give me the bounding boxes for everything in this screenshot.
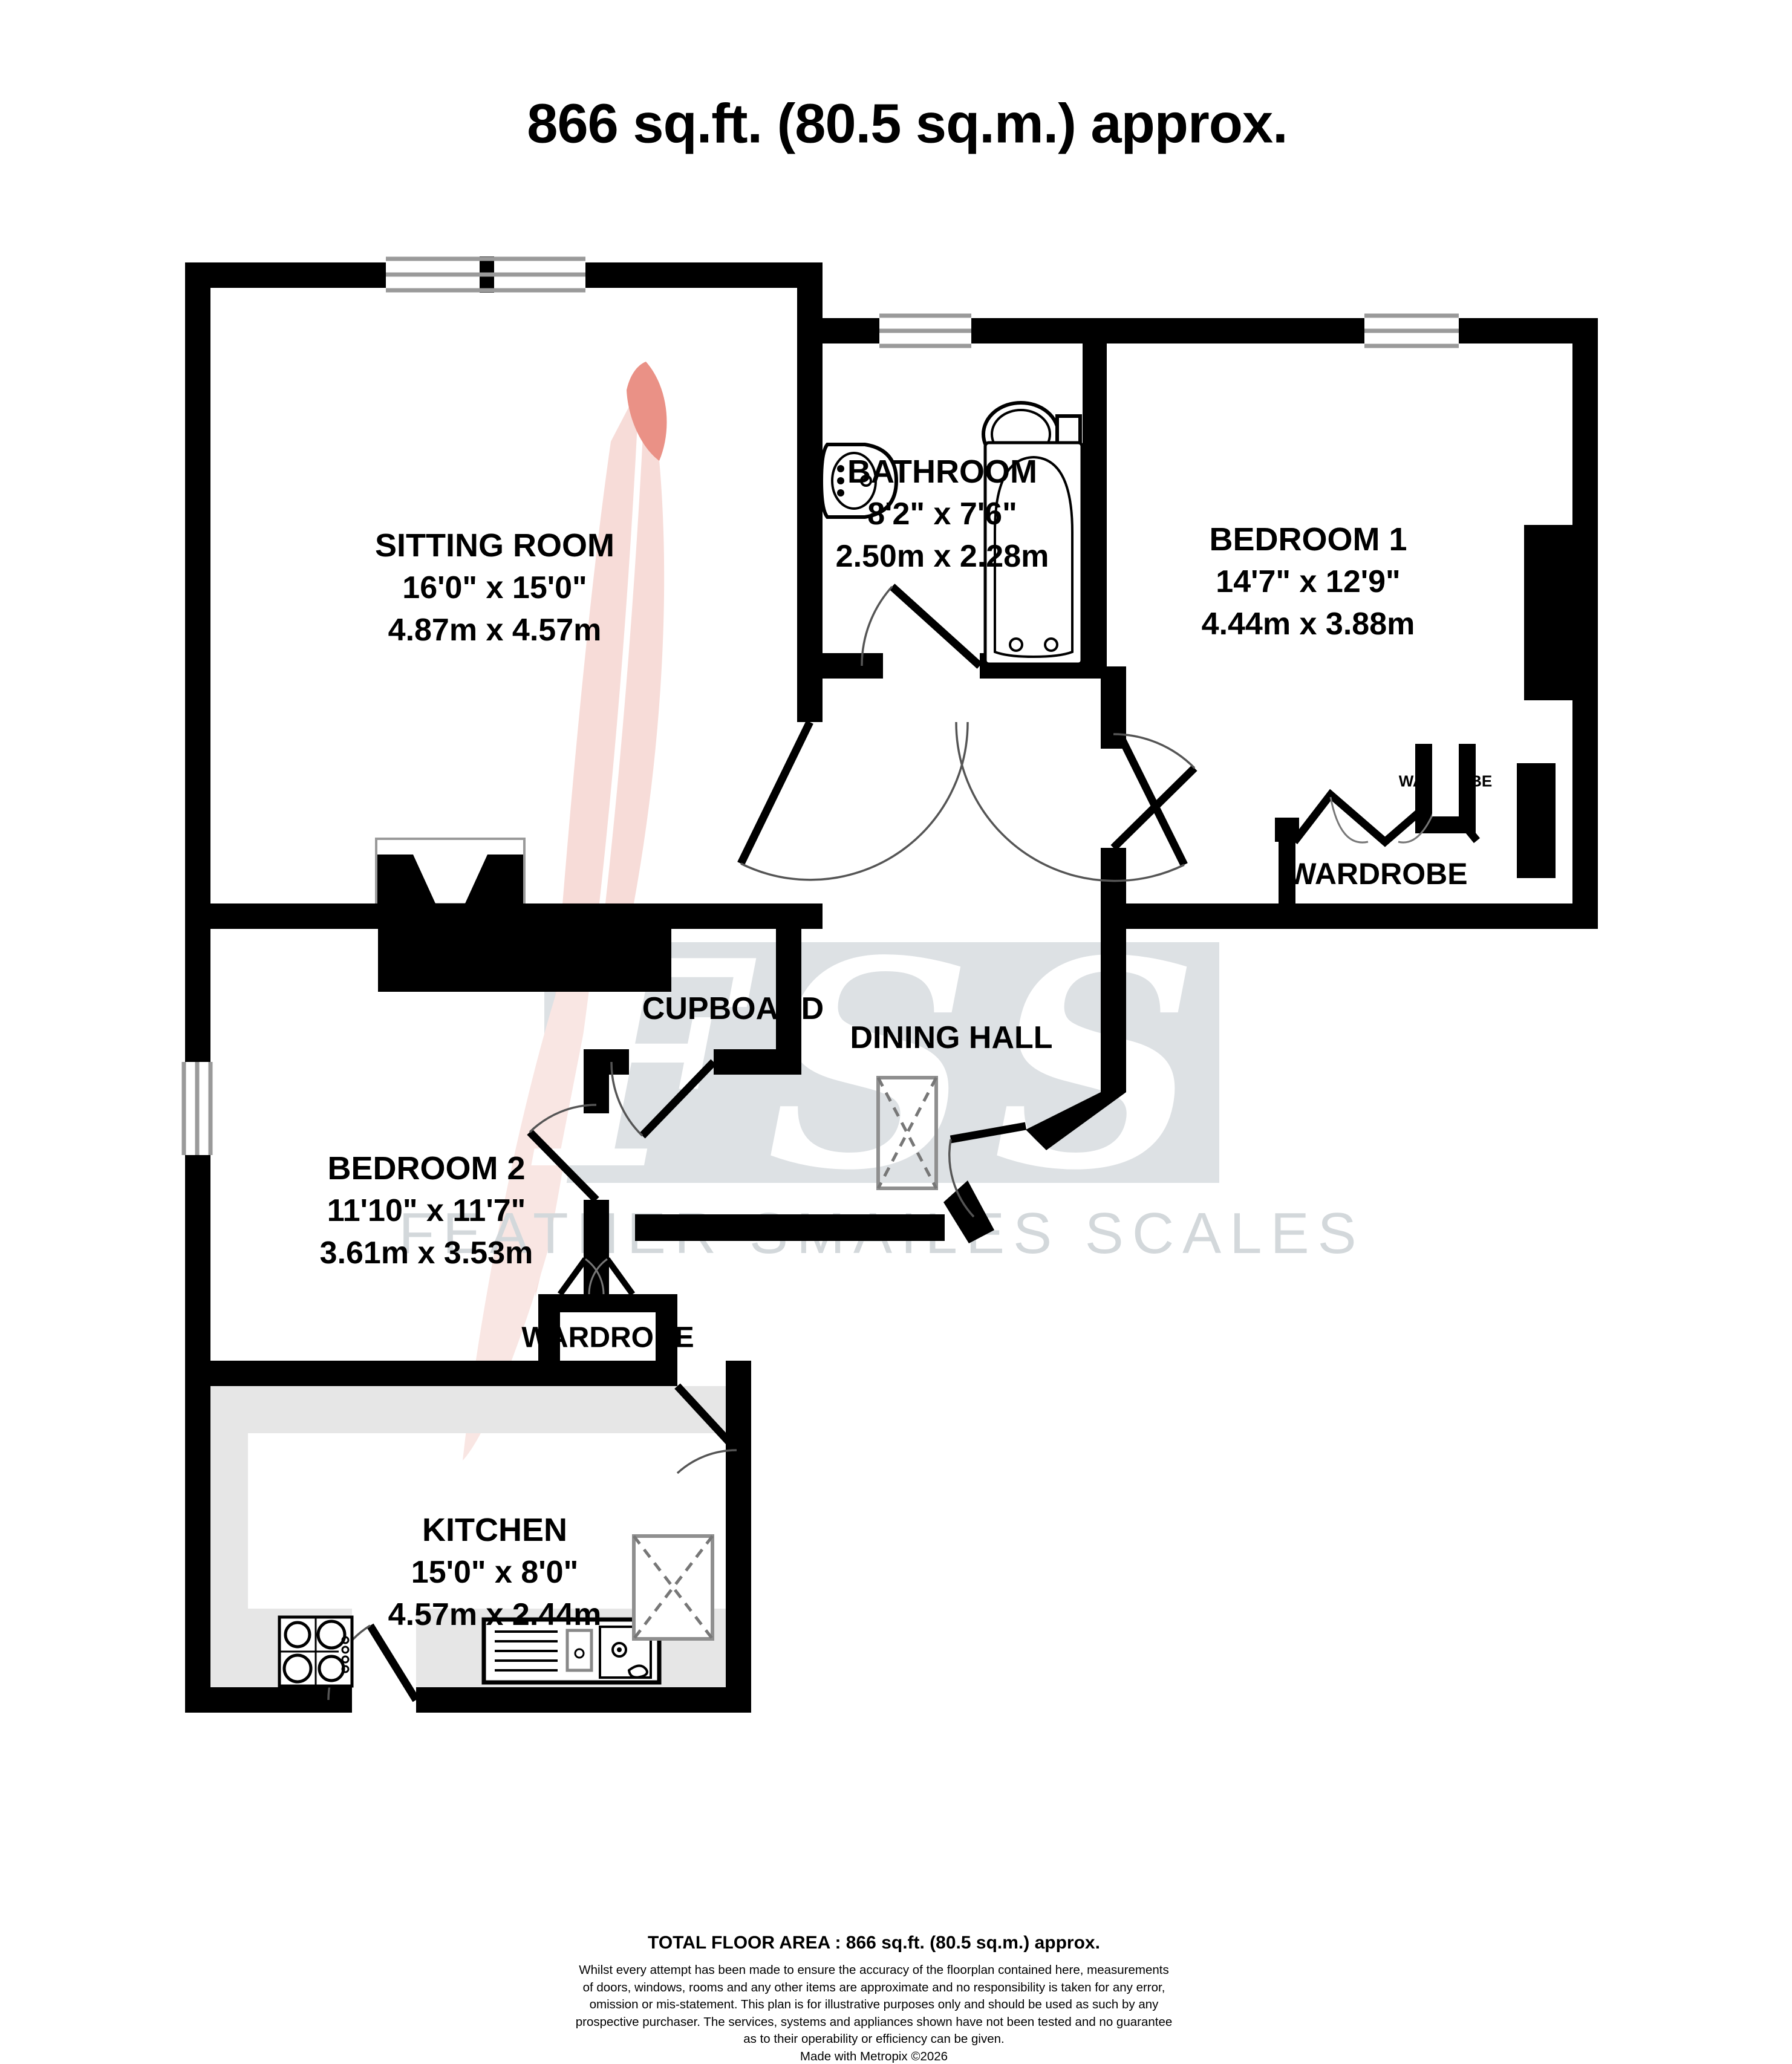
room-dim-imperial: 8'2" x 7'6" [836,493,1049,535]
room-dim-imperial: 15'0" x 8'0" [388,1551,602,1594]
room-dim-metric: 4.57m x 2.44m [388,1594,602,1636]
page-title: 866 sq.ft. (80.5 sq.m.) approx. [527,93,1287,156]
room-name: BEDROOM 2 [320,1147,533,1190]
disclaimer-line: as to their operability or efficiency ca… [451,2031,1297,2048]
kitchen-label: KITCHEN 15'0" x 8'0" 4.57m x 2.44m [388,1509,602,1636]
bathroom-label: BATHROOM 8'2" x 7'6" 2.50m x 2.28m [836,451,1049,578]
room-dim-imperial: 11'10" x 11'7" [320,1190,533,1232]
disclaimer-line: omission or mis-statement. This plan is … [451,1996,1297,2014]
metropix-credit: Made with Metropix ©2026 [451,2049,1297,2064]
room-dim-metric: 2.50m x 2.28m [836,535,1049,578]
room-dim-metric: 4.87m x 4.57m [375,609,614,651]
room-dim-imperial: 16'0" x 15'0" [375,567,614,609]
disclaimer-line: Whilst every attempt has been made to en… [451,1962,1297,1979]
room-name: BEDROOM 1 [1202,518,1415,561]
room-name: BATHROOM [836,451,1049,493]
bedroom1-label: BEDROOM 1 14'7" x 12'9" 4.44m x 3.88m [1202,518,1415,645]
disclaimer-line: prospective purchaser. The services, sys… [451,2014,1297,2031]
room-dim-metric: 4.44m x 3.88m [1202,603,1415,645]
room-name: KITCHEN [388,1509,602,1551]
room-dim-imperial: 14'7" x 12'9" [1202,561,1415,603]
disclaimer-line: of doors, windows, rooms and any other i… [451,1979,1297,1997]
floorplan-canvas: FSS FEATHER SMAILES SCALES CUPBOARD WARD… [0,0,1792,2059]
room-name: SITTING ROOM [375,524,614,567]
bedroom2-label: BEDROOM 2 11'10" x 11'7" 3.61m x 3.53m [320,1147,533,1274]
room-dim-metric: 3.61m x 3.53m [320,1232,533,1274]
sitting-room-label: SITTING ROOM 16'0" x 15'0" 4.87m x 4.57m [375,524,614,651]
total-floor-area: TOTAL FLOOR AREA : 866 sq.ft. (80.5 sq.m… [451,1933,1297,1953]
dining-hall-label: DINING HALL [850,1020,1052,1056]
footer: TOTAL FLOOR AREA : 866 sq.ft. (80.5 sq.m… [451,1933,1297,2064]
wardrobe-bedroom1-label: WARDROBE [1288,856,1467,891]
